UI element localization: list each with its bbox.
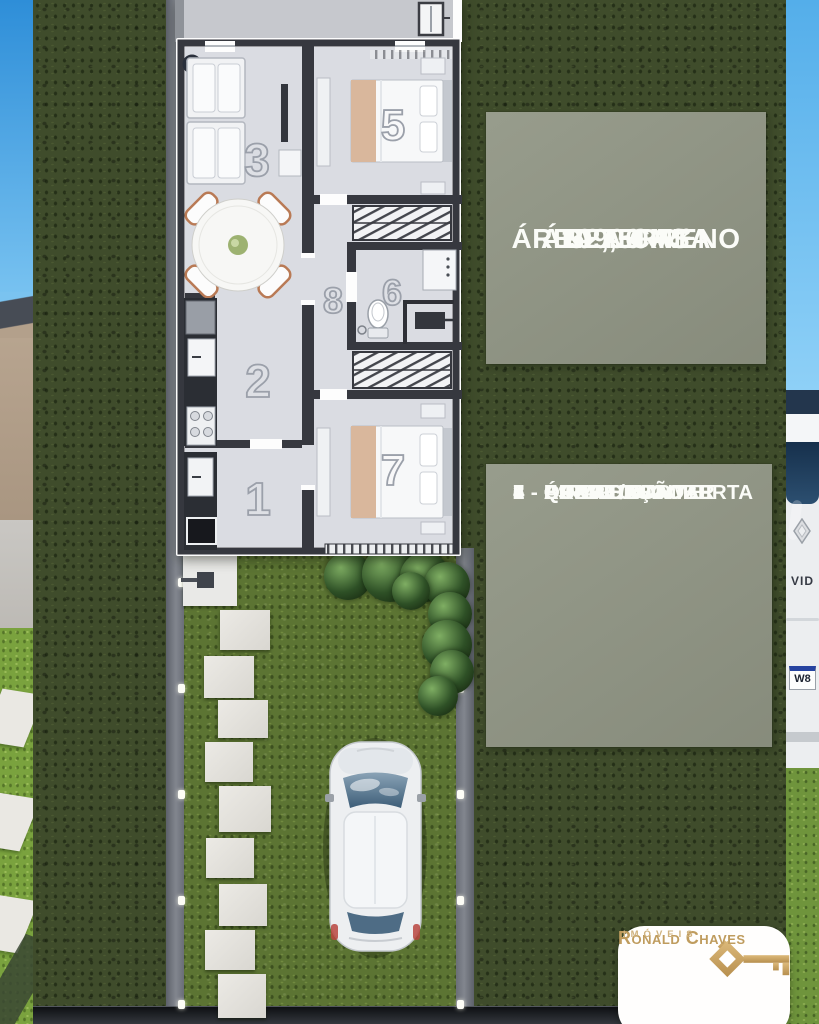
van-roof [786, 390, 819, 414]
fridge [186, 301, 215, 334]
van-decal-text: VID [786, 574, 819, 590]
brand-subtitle: IMÓVEIS [618, 929, 698, 940]
neighbor-roof-edge [0, 292, 33, 338]
shrub [418, 676, 458, 716]
grill [187, 518, 216, 544]
wall-light [178, 1000, 185, 1009]
floor-plan [175, 0, 462, 558]
parked-van-photo: VID W8 [786, 390, 819, 768]
legend-panel: 1 - ÁREA GOURMET 2 - COZINHA 3 - ESTAR /… [486, 464, 772, 747]
gourmet-furniture [184, 452, 217, 550]
van-windshield [786, 442, 819, 504]
stepping-stone [219, 884, 267, 926]
sky-left [0, 0, 33, 300]
background-photo-left [0, 0, 33, 1024]
gate-lead [181, 578, 197, 582]
kitchen-furniture [184, 298, 217, 446]
vanity [423, 250, 456, 290]
stepping-stone [220, 610, 270, 650]
tv-panel [281, 84, 288, 142]
room-number-6: 6 [382, 275, 402, 311]
dining-table [183, 190, 293, 300]
stepping-stone [219, 786, 271, 832]
room-number-3: 3 [244, 137, 270, 183]
room-number-2: 2 [245, 358, 271, 404]
legend-item: 8 - CIRCULAÇÃO [513, 476, 685, 511]
stepping-stone [204, 656, 254, 698]
wall-light [178, 684, 185, 693]
room-number-1: 1 [245, 476, 271, 522]
wall-light [457, 896, 464, 905]
renault-diamond-icon [793, 518, 811, 544]
area-info-panel: ÁREA TERRENO 109,50 M² ÁREA CASA 52,00 M… [486, 112, 766, 364]
patio-area-descoberta [175, 0, 462, 42]
background-photo-right: VID W8 [786, 0, 819, 1024]
shrub [392, 572, 430, 610]
license-plate: W8 [789, 666, 816, 690]
neighbor-driveway [0, 520, 33, 628]
bath-counter [415, 312, 445, 329]
wall-light [178, 896, 185, 905]
render-floorplan-scene: VID W8 [0, 0, 819, 1024]
stepping-stone [206, 838, 254, 878]
sliding-door-band [325, 544, 453, 554]
utility-pad [183, 556, 237, 606]
van-roof-panel [786, 414, 819, 442]
utility-box [197, 572, 214, 588]
room-number-8: 8 [323, 283, 343, 319]
room-number-5: 5 [381, 104, 405, 148]
van-bumper [786, 732, 819, 742]
wall-light [457, 790, 464, 799]
stepping-stone [205, 742, 253, 782]
neighbor-grass-right [786, 768, 819, 1024]
brand-card: Ronald Chaves IMÓVEIS [618, 926, 790, 1024]
wall-light [457, 1000, 464, 1009]
neighbor-roof [0, 338, 33, 520]
sky-right [786, 0, 819, 390]
wall-light [178, 790, 185, 799]
van-body-crease [786, 618, 819, 621]
stepping-stone [205, 930, 255, 970]
house-area-value: 52,00 M² [569, 221, 684, 256]
stepping-stone [218, 700, 268, 738]
stepping-stone [218, 974, 266, 1018]
room-number-7: 7 [381, 449, 405, 493]
car-top-view-icon [327, 740, 424, 955]
